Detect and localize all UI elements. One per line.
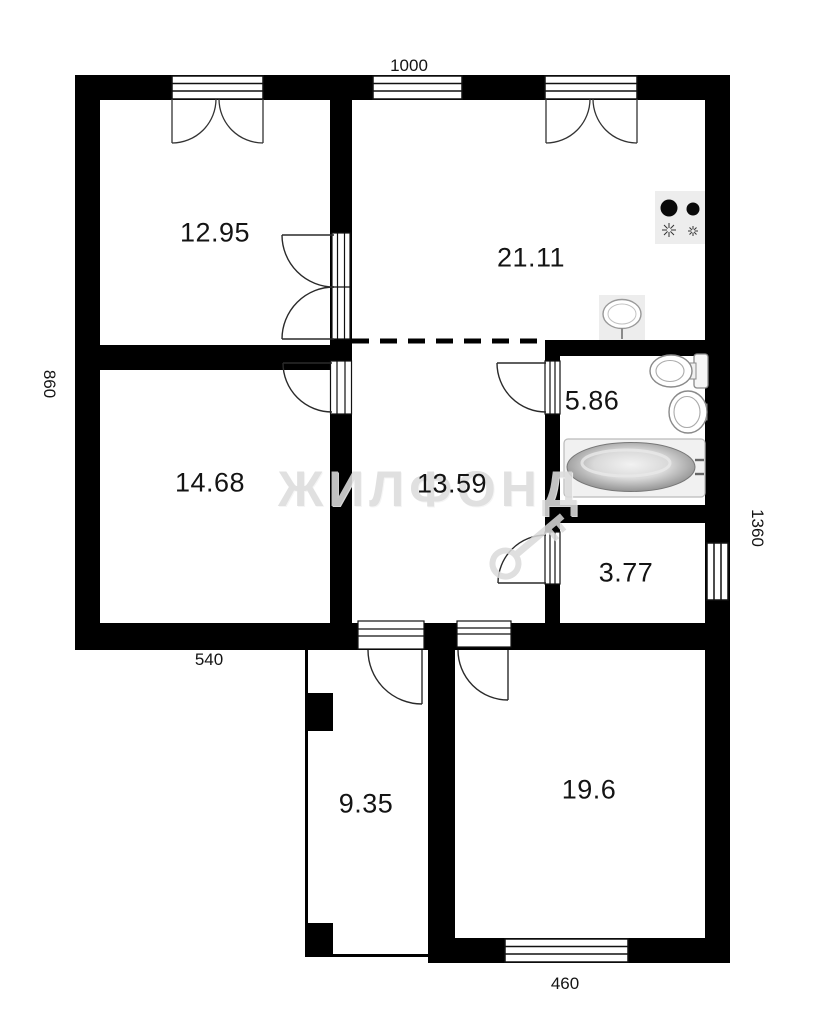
- room-area-label-kitchen: 21.11: [497, 243, 565, 274]
- window-symbol: [707, 543, 728, 600]
- door-swing: [458, 650, 508, 700]
- door-jambs: [331, 233, 561, 649]
- door-swing: [283, 363, 332, 412]
- room-area-label-hallway: 13.59: [417, 469, 487, 500]
- window-symbol: [505, 939, 628, 962]
- dimension-label-right: 1360: [747, 509, 767, 547]
- door-swing: [282, 287, 334, 339]
- dimension-label-bottom: 460: [551, 974, 579, 994]
- stove-icon: [655, 191, 705, 244]
- washbasin-icon: [669, 391, 707, 433]
- room-area-label-veranda: 9.35: [339, 789, 394, 820]
- door-swing: [368, 650, 422, 704]
- room-area-label-bathroom: 5.86: [565, 386, 620, 417]
- toilet-icon: [650, 354, 708, 388]
- dimension-label-left: 860: [39, 370, 59, 398]
- kitchen-sink-icon: [599, 295, 645, 340]
- room-area-label-room-bottom: 19.6: [562, 775, 617, 806]
- room-area-label-room-top-left: 12.95: [180, 218, 250, 249]
- dimension-label-top: 1000: [390, 56, 428, 76]
- walls: [75, 75, 730, 963]
- window-symbol: [545, 76, 637, 99]
- floor-plan: ЖИЛФОНД 12.95 21.11 14.68 13.59 5.86 3.7…: [0, 0, 835, 1024]
- window-symbol: [373, 76, 462, 99]
- room-area-label-storage: 3.77: [599, 558, 654, 589]
- room-area-label-room-mid-left: 14.68: [175, 468, 245, 499]
- door-swing: [497, 363, 546, 412]
- casement-swings: [172, 99, 637, 143]
- window-symbol: [172, 76, 263, 99]
- door-swing: [282, 235, 334, 287]
- dimension-label-bottom-left: 540: [195, 650, 223, 670]
- veranda-pillar: [307, 923, 333, 957]
- veranda-pillar: [307, 693, 333, 731]
- bathtub-icon: [564, 439, 705, 497]
